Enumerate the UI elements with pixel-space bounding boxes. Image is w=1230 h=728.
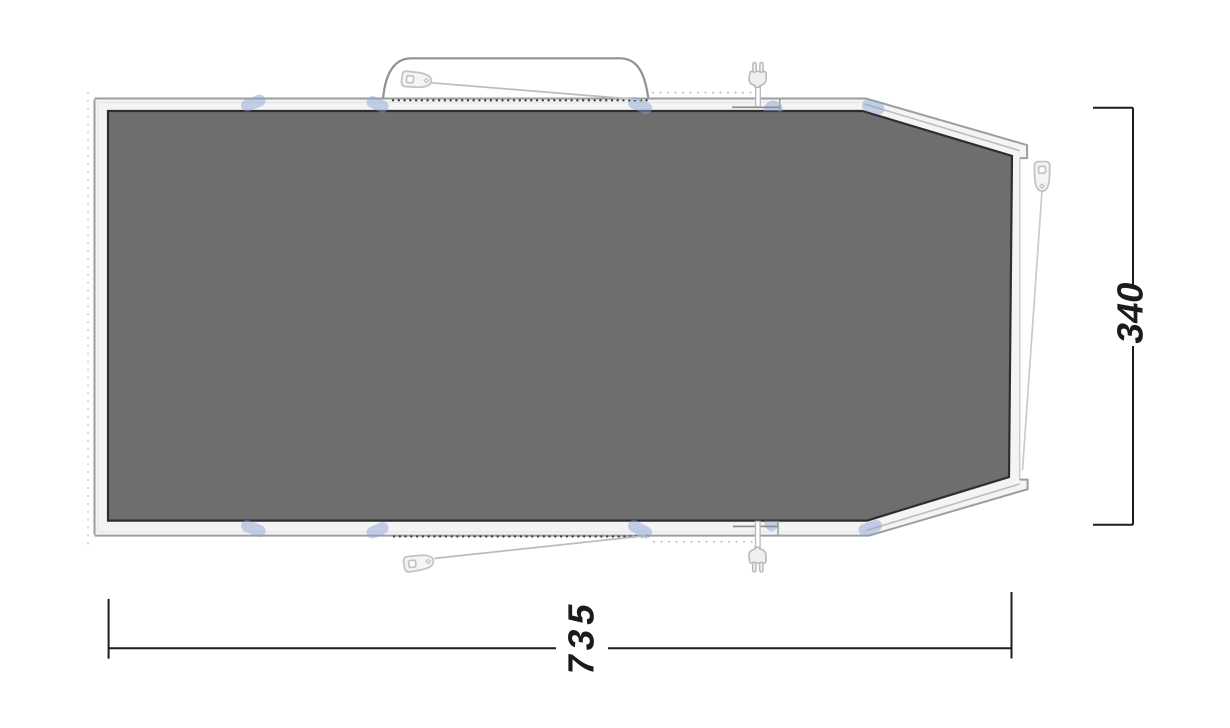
svg-text:340: 340 — [1110, 278, 1151, 346]
svg-text:735: 735 — [561, 595, 602, 678]
